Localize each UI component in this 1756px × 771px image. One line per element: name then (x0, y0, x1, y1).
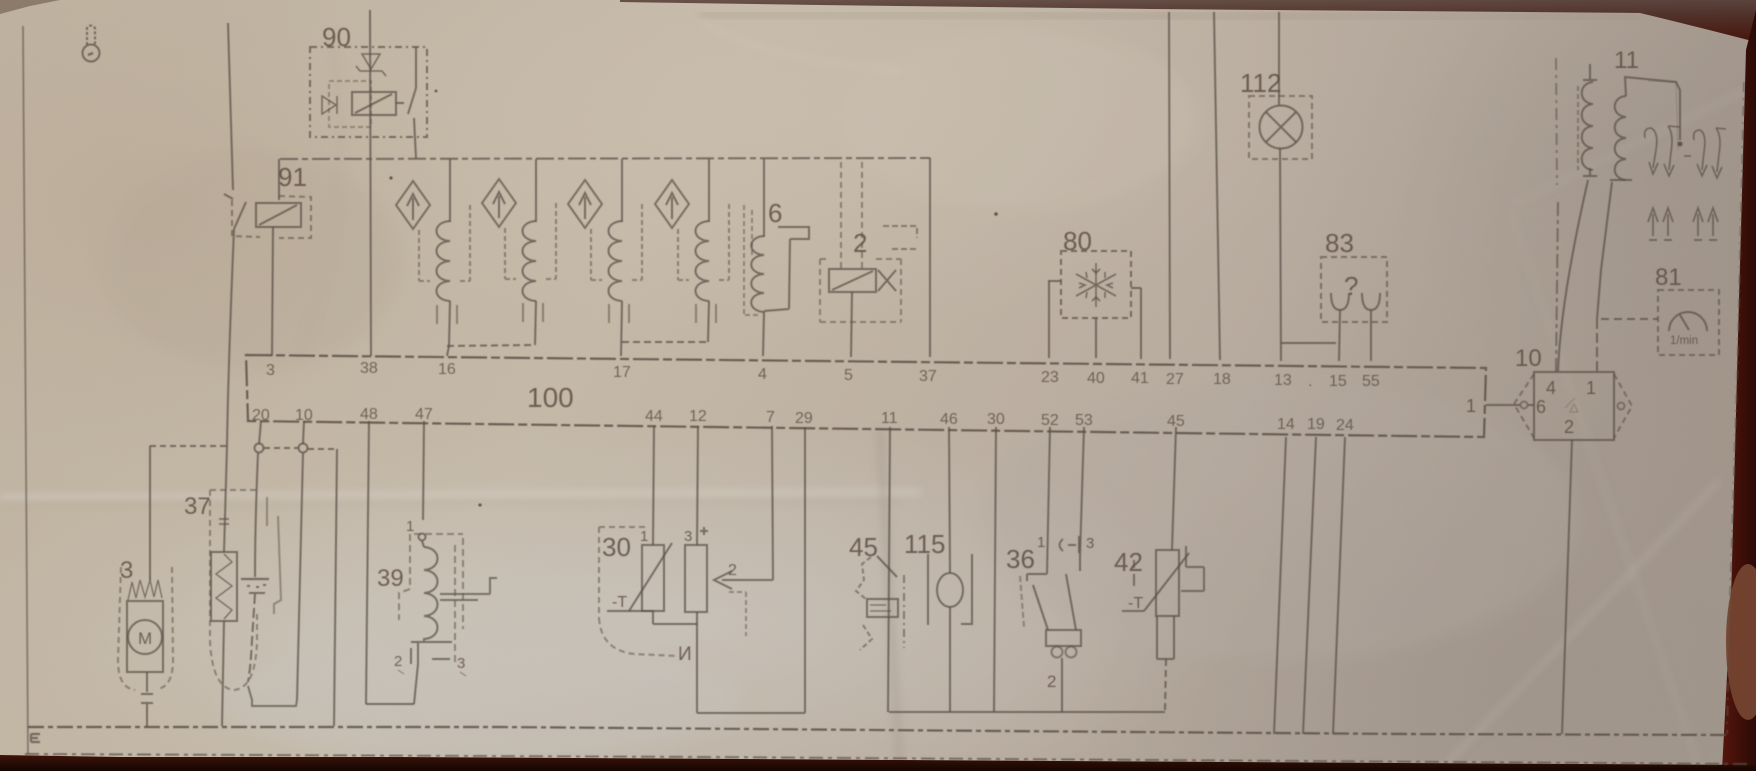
svg-text:6: 6 (1536, 397, 1546, 417)
svg-text:15: 15 (1329, 373, 1347, 390)
svg-text:3: 3 (457, 655, 465, 672)
svg-text:4: 4 (758, 366, 767, 383)
svg-text:30: 30 (602, 532, 631, 562)
svg-text:1: 1 (406, 518, 414, 535)
svg-text:37: 37 (184, 493, 211, 520)
svg-text:1/min: 1/min (1670, 335, 1698, 347)
svg-text:1: 1 (1586, 378, 1596, 398)
svg-text:112: 112 (1240, 68, 1281, 98)
svg-text:40: 40 (1087, 370, 1105, 387)
svg-text:4: 4 (1546, 378, 1556, 398)
svg-text:48: 48 (360, 406, 378, 423)
svg-text:7: 7 (766, 409, 775, 426)
svg-text:100: 100 (527, 382, 574, 413)
svg-text:83: 83 (1325, 228, 1354, 258)
svg-text:14: 14 (1277, 416, 1295, 433)
svg-text:3: 3 (684, 528, 692, 545)
svg-text:10: 10 (1515, 345, 1542, 372)
svg-text:1: 1 (640, 528, 648, 545)
svg-text:2: 2 (1047, 672, 1056, 691)
svg-text:M: M (138, 629, 152, 648)
svg-text:47: 47 (415, 406, 433, 423)
svg-text:18: 18 (1213, 371, 1231, 388)
svg-text:12: 12 (689, 408, 707, 425)
svg-text:3: 3 (1086, 535, 1094, 552)
svg-text:2: 2 (853, 228, 867, 258)
svg-text:23: 23 (1041, 369, 1059, 386)
svg-text:1: 1 (1466, 396, 1476, 416)
svg-text:30: 30 (987, 411, 1005, 428)
svg-text:И: И (678, 644, 692, 665)
svg-text:46: 46 (940, 411, 958, 428)
svg-text:42: 42 (1114, 547, 1143, 577)
svg-text:27: 27 (1166, 371, 1184, 388)
svg-text:44: 44 (645, 408, 663, 425)
svg-text:115: 115 (904, 529, 945, 559)
svg-text:-T: -T (1128, 595, 1143, 612)
svg-text:39: 39 (377, 565, 404, 592)
svg-text:2: 2 (1564, 417, 1574, 437)
svg-text:41: 41 (1131, 370, 1149, 387)
svg-text:37: 37 (919, 368, 937, 385)
svg-text:11: 11 (1614, 47, 1639, 74)
svg-text:80: 80 (1063, 226, 1092, 256)
svg-text:29: 29 (795, 410, 813, 427)
svg-text:6: 6 (768, 198, 782, 228)
svg-text:11: 11 (881, 410, 898, 427)
svg-text:2: 2 (728, 562, 737, 579)
svg-text:91: 91 (278, 162, 307, 192)
svg-text:16: 16 (438, 361, 456, 378)
svg-text:81: 81 (1655, 264, 1682, 291)
svg-text:2: 2 (394, 653, 402, 670)
svg-text:5: 5 (844, 367, 853, 384)
svg-text:19: 19 (1307, 416, 1325, 433)
svg-text:3: 3 (120, 557, 133, 584)
svg-text:3: 3 (266, 362, 275, 379)
svg-text:53: 53 (1075, 412, 1093, 429)
svg-text:.: . (1308, 373, 1312, 390)
svg-text:13: 13 (1274, 372, 1292, 389)
svg-text:55: 55 (1362, 373, 1380, 390)
svg-text:-T: -T (612, 594, 627, 611)
svg-text:1: 1 (1037, 534, 1045, 551)
svg-text:52: 52 (1041, 412, 1059, 429)
svg-text:45: 45 (849, 532, 878, 562)
svg-text:38: 38 (360, 360, 378, 377)
svg-text:17: 17 (613, 364, 631, 381)
svg-text:?: ? (1344, 271, 1358, 301)
svg-text:36: 36 (1006, 544, 1035, 574)
svg-text:24: 24 (1336, 417, 1354, 434)
